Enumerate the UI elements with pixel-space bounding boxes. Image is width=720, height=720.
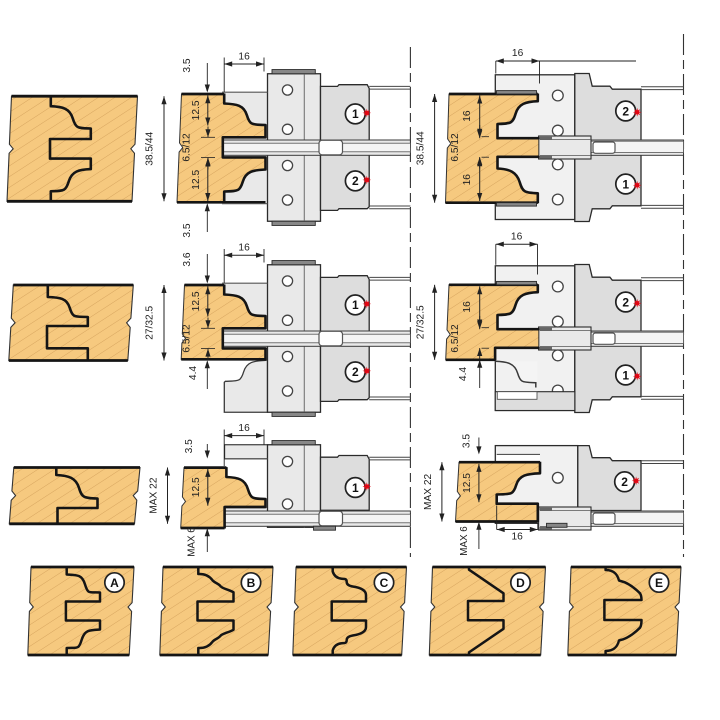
svg-text:MAX 22: MAX 22	[149, 477, 160, 514]
svg-text:16: 16	[462, 174, 473, 186]
svg-text:3.5: 3.5	[184, 439, 195, 453]
svg-text:B: B	[247, 576, 256, 590]
svg-text:12.5: 12.5	[191, 477, 202, 497]
svg-text:A: A	[110, 576, 119, 590]
svg-text:MAX 6: MAX 6	[187, 527, 198, 557]
svg-text:2: 2	[352, 174, 359, 188]
svg-text:16: 16	[462, 301, 473, 313]
svg-text:16: 16	[512, 48, 524, 59]
svg-text:2: 2	[622, 295, 629, 309]
svg-text:4.4: 4.4	[458, 367, 469, 381]
svg-text:16: 16	[462, 110, 473, 122]
svg-text:12.5: 12.5	[191, 170, 202, 190]
svg-text:6.5/12: 6.5/12	[182, 133, 193, 162]
svg-text:MAX 6: MAX 6	[459, 526, 470, 556]
svg-text:16: 16	[511, 232, 523, 243]
svg-text:1: 1	[622, 368, 629, 382]
svg-text:3.5: 3.5	[462, 434, 473, 448]
svg-text:6.5/12: 6.5/12	[182, 324, 193, 353]
svg-text:27/32.5: 27/32.5	[144, 305, 155, 339]
svg-text:6.5/12: 6.5/12	[450, 324, 461, 353]
svg-text:2: 2	[621, 475, 628, 489]
svg-text:12.5: 12.5	[462, 473, 473, 493]
svg-text:12.5: 12.5	[191, 291, 202, 311]
svg-text:16: 16	[238, 52, 250, 63]
svg-text:12.5: 12.5	[191, 100, 202, 120]
svg-text:MAX 22: MAX 22	[423, 473, 434, 510]
svg-text:4.4: 4.4	[188, 366, 199, 380]
svg-text:2: 2	[622, 104, 629, 118]
svg-text:D: D	[516, 576, 525, 590]
svg-text:3.6: 3.6	[182, 252, 193, 266]
svg-text:1: 1	[352, 481, 359, 495]
svg-text:2: 2	[352, 365, 359, 379]
svg-text:1: 1	[352, 298, 359, 312]
svg-text:38.5/44: 38.5/44	[145, 131, 156, 165]
svg-text:3.5: 3.5	[182, 223, 193, 237]
svg-text:1: 1	[352, 107, 359, 121]
svg-text:E: E	[655, 576, 663, 590]
svg-text:38.5/44: 38.5/44	[416, 131, 427, 165]
svg-text:16: 16	[512, 532, 524, 543]
svg-text:3.5: 3.5	[182, 58, 193, 72]
svg-text:1: 1	[622, 177, 629, 191]
svg-text:C: C	[380, 576, 389, 590]
svg-text:16: 16	[238, 423, 250, 434]
svg-text:16: 16	[238, 243, 250, 254]
svg-text:6.5/12: 6.5/12	[450, 133, 461, 162]
svg-text:27/32.5: 27/32.5	[416, 305, 427, 339]
